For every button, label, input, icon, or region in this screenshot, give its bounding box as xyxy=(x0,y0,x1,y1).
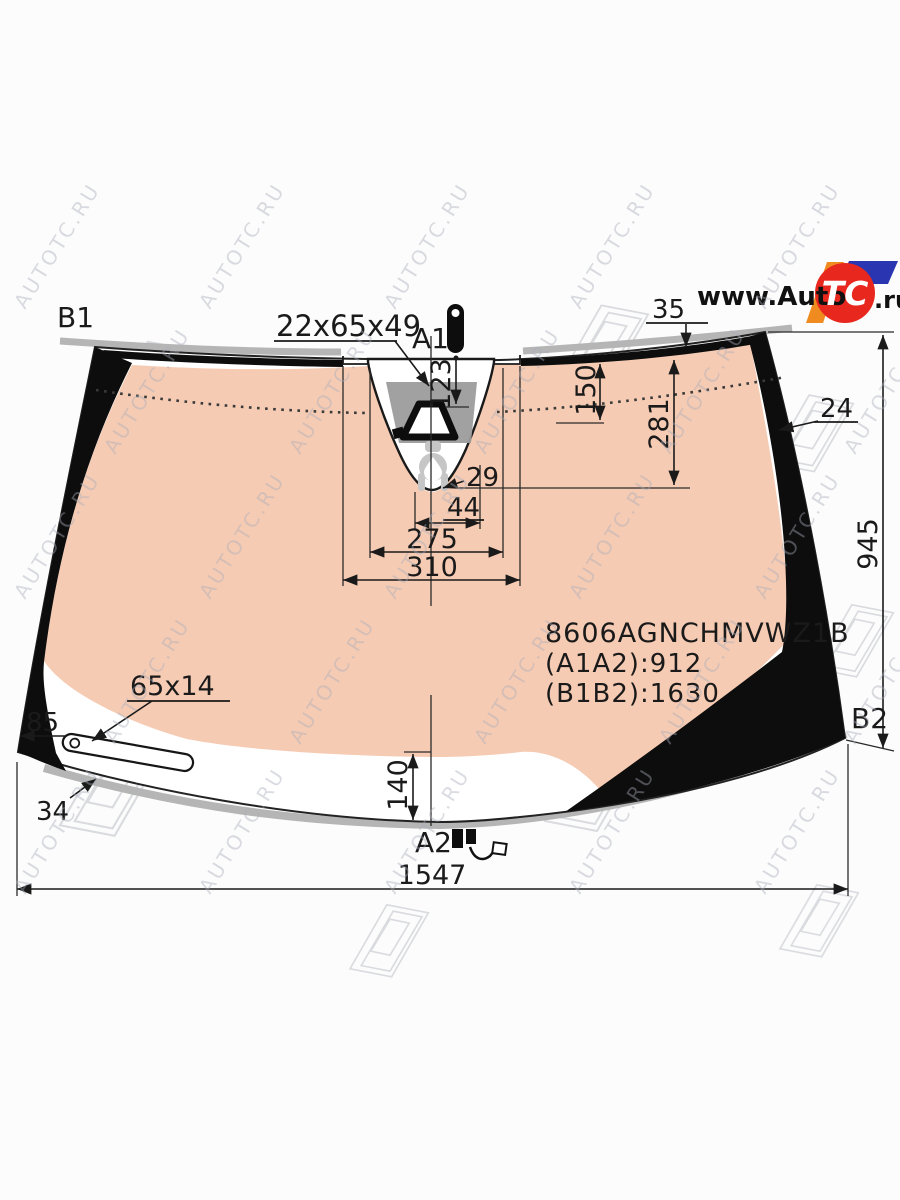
dim-sticker-off-label: 85 xyxy=(26,708,59,738)
dim-bottom-band-label: 140 xyxy=(383,759,414,811)
watermark-text: AUTOTC.RU xyxy=(379,179,475,313)
dim-top-gap-label: 35 xyxy=(652,295,685,325)
logo-text-badge: TC xyxy=(822,274,869,313)
dim-side-h-label: 945 xyxy=(853,518,884,570)
watermark-text: AUTOTC.RU xyxy=(9,179,105,313)
part-number: 8606AGNCHMVWZ1B xyxy=(545,618,850,649)
dim-right-band-label: 24 xyxy=(820,394,853,424)
site-logo: www.Auto TC .ru xyxy=(697,261,900,323)
watermark-text: AUTOTC.RU xyxy=(194,179,290,313)
diagram-canvas: B1 A1 B2 A2 22x65x49 35 24 123 150 281 2… xyxy=(0,0,900,1200)
dim-bracket-label: 22x65x49 xyxy=(276,309,421,343)
a1-pin-icon xyxy=(447,304,464,353)
watermark-text: AUTOTC.RU xyxy=(839,324,900,458)
dim-cam-offset-label: 123 xyxy=(426,358,457,410)
dim-shade-band-label: 150 xyxy=(571,364,602,416)
watermark-text: AUTOTC.RU xyxy=(749,764,845,898)
part-a1a2-distance: (A1A2):912 xyxy=(545,649,702,679)
corner-label-b1: B1 xyxy=(57,301,94,334)
windshield-diagram: B1 A1 B2 A2 22x65x49 35 24 123 150 281 2… xyxy=(0,0,900,1200)
watermark-text: AUTOTC.RU xyxy=(564,179,660,313)
logo-text-suffix: .ru xyxy=(874,286,900,314)
dim-sensor-gap-label: 29 xyxy=(466,463,499,493)
a2-connector-icon xyxy=(452,829,507,859)
